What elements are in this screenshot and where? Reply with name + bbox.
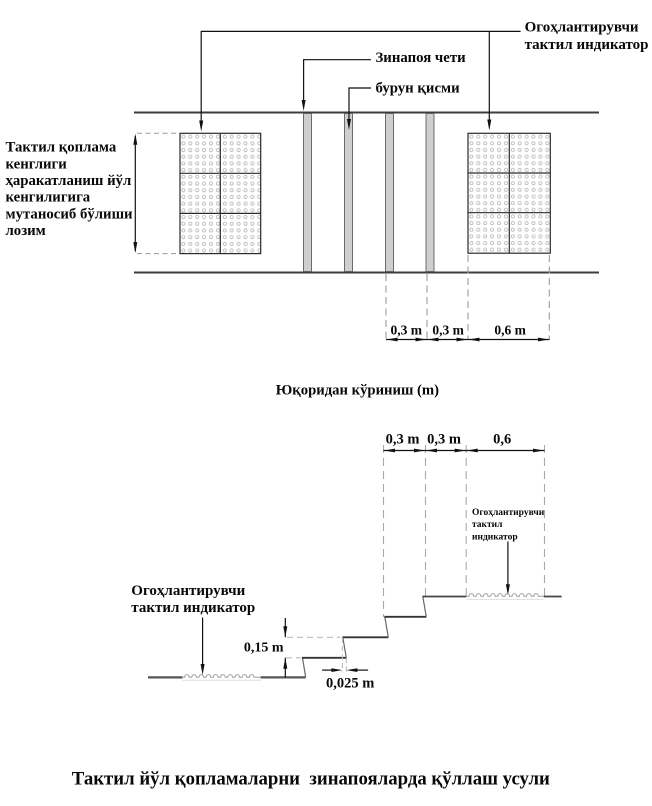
svg-text:0,15 m: 0,15 m <box>244 641 284 656</box>
svg-text:Огоҳлантирувчи: Огоҳлантирувчи <box>525 19 639 35</box>
svg-text:Тактил қоплама: Тактил қоплама <box>6 140 117 156</box>
svg-text:0,3 m: 0,3 m <box>386 432 420 448</box>
svg-text:Тактил йўл қопламаларни зинап: Тактил йўл қопламаларни зинапояларда қўл… <box>72 768 550 789</box>
svg-text:Зинапоя чети: Зинапоя чети <box>376 50 467 66</box>
svg-text:0,025 m: 0,025 m <box>326 676 374 692</box>
svg-text:кенгилигига: кенгилигига <box>6 190 91 206</box>
svg-text:0,3 m: 0,3 m <box>432 323 464 338</box>
svg-text:ҳаракатланиш йўл: ҳаракатланиш йўл <box>6 173 132 189</box>
svg-text:мутаносиб бўлиши: мутаносиб бўлиши <box>6 206 134 222</box>
svg-text:индикатор: индикатор <box>472 532 518 542</box>
svg-text:кенглиги: кенглиги <box>6 156 68 172</box>
svg-text:0,3 m: 0,3 m <box>390 323 422 338</box>
svg-text:бурун қисми: бурун қисми <box>376 81 461 97</box>
svg-text:Огоҳлантирувчи: Огоҳлантирувчи <box>131 583 245 599</box>
svg-text:Юқоридан кўриниш (m): Юқоридан кўриниш (m) <box>276 383 439 399</box>
svg-text:тактил индикатор: тактил индикатор <box>131 600 255 616</box>
svg-text:0,6 m: 0,6 m <box>494 323 526 338</box>
svg-text:0,6: 0,6 <box>493 432 511 448</box>
svg-text:Огоҳлантирувчи: Огоҳлантирувчи <box>472 508 545 518</box>
svg-text:тактил: тактил <box>472 520 503 530</box>
svg-text:0,3 m: 0,3 m <box>427 432 461 448</box>
svg-text:лозим: лозим <box>6 223 46 239</box>
svg-text:тактил индикатор: тактил индикатор <box>525 37 649 53</box>
